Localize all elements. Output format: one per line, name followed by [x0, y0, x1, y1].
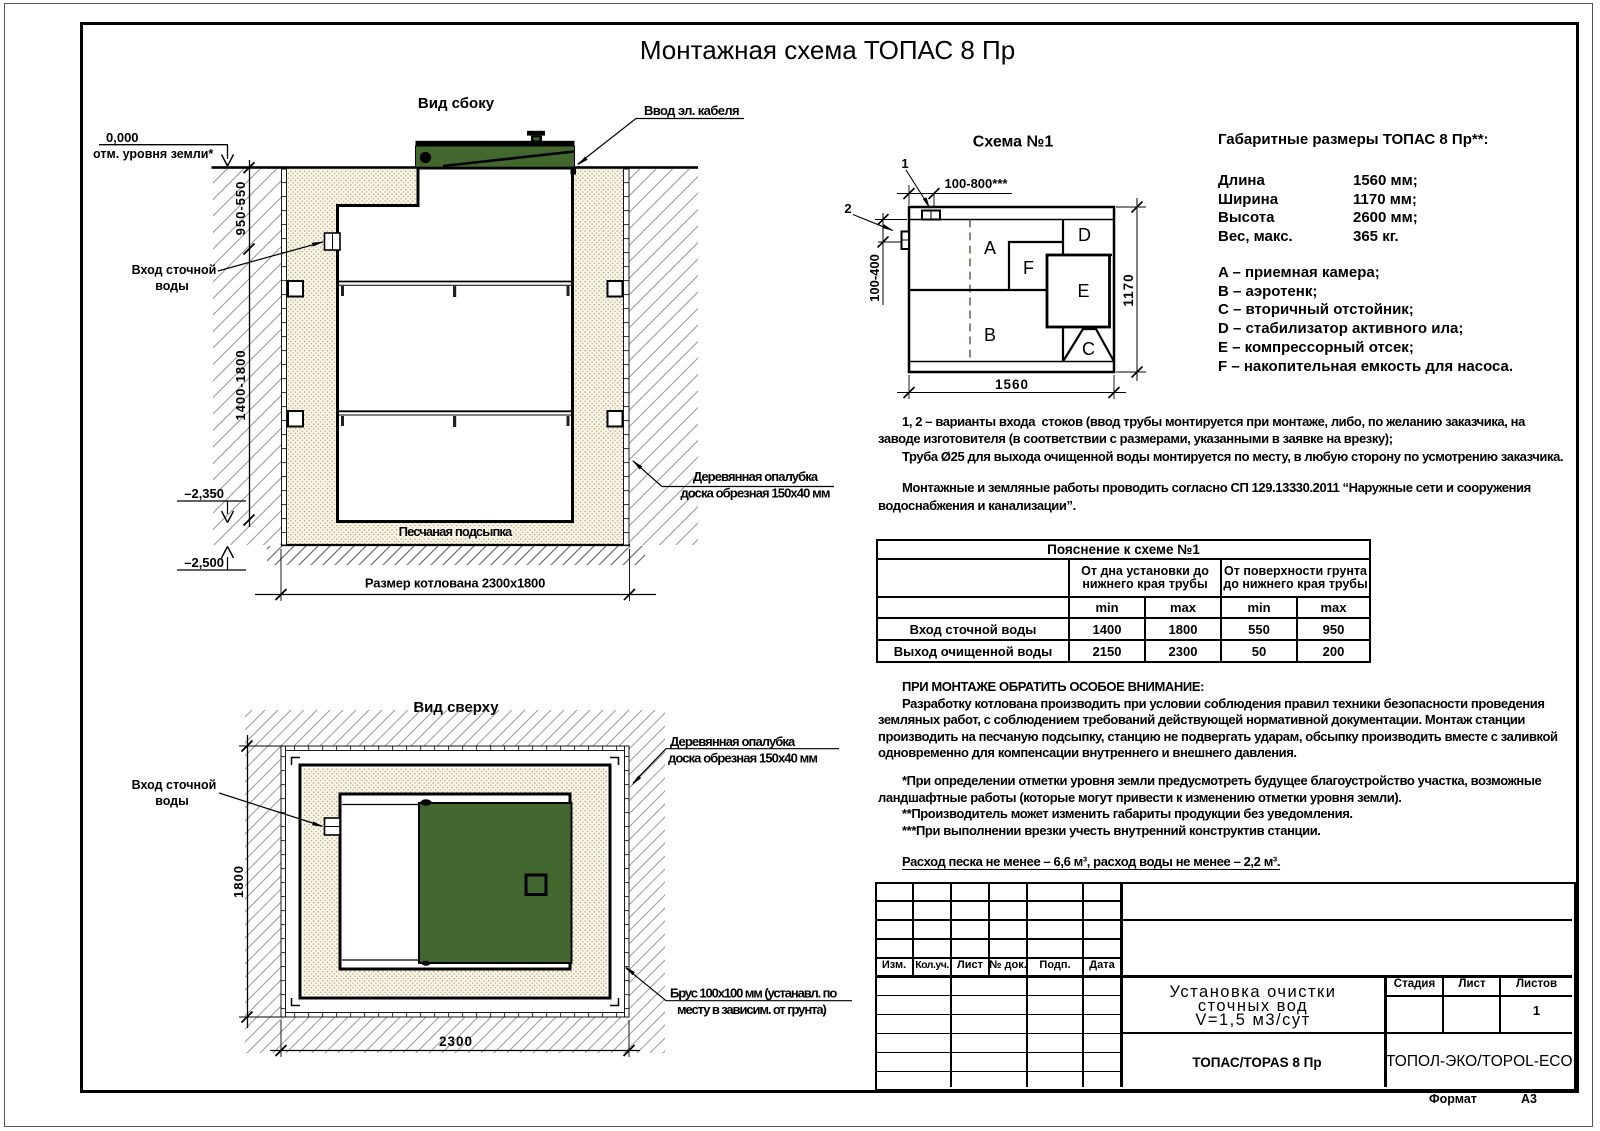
svg-text:Вход сточной: Вход сточной: [132, 778, 217, 792]
svg-text:Брус 100x100 мм (устанавл. по: Брус 100x100 мм (устанавл. по: [670, 986, 837, 1001]
svg-text:Ввод эл. кабеля: Ввод эл. кабеля: [644, 103, 739, 118]
svg-text:2: 2: [844, 201, 851, 216]
svg-text:Размер котлована 2300x1800: Размер котлована 2300x1800: [365, 576, 545, 591]
svg-text:Схема №1: Схема №1: [973, 134, 1054, 151]
svg-text:воды: воды: [155, 279, 189, 293]
svg-text:Песчаная подсыпка: Песчаная подсыпка: [399, 524, 513, 539]
svg-text:Деревянная опалубка: Деревянная опалубка: [693, 469, 819, 484]
svg-text:0,000: 0,000: [106, 130, 139, 145]
svg-text:отм. уровня земли*: отм. уровня земли*: [93, 147, 213, 161]
svg-text:Вид сбоку: Вид сбоку: [418, 95, 495, 112]
svg-text:950-550: 950-550: [233, 181, 248, 236]
svg-text:воды: воды: [155, 794, 189, 808]
svg-text:–2,350: –2,350: [184, 486, 224, 501]
svg-text:2300: 2300: [439, 1034, 473, 1049]
svg-text:1800: 1800: [231, 865, 246, 898]
svg-text:100-800***: 100-800***: [945, 176, 1009, 191]
svg-text:1: 1: [901, 156, 908, 171]
svg-text:Деревянная опалубка: Деревянная опалубка: [670, 734, 796, 749]
svg-text:1400-1800: 1400-1800: [233, 349, 248, 420]
svg-text:D: D: [1078, 225, 1091, 245]
svg-text:месту в зависим. от грунта): месту в зависим. от грунта): [677, 1002, 826, 1017]
svg-text:E: E: [1077, 281, 1089, 301]
svg-text:Вход сточной: Вход сточной: [132, 263, 217, 277]
svg-text:1170: 1170: [1121, 273, 1136, 306]
svg-text:F: F: [1023, 258, 1034, 278]
svg-text:доска обрезная 150x40 мм: доска обрезная 150x40 мм: [668, 751, 817, 766]
svg-text:C: C: [1082, 339, 1095, 359]
svg-text:доска обрезная 150x40 мм: доска обрезная 150x40 мм: [680, 486, 829, 501]
svg-text:A: A: [984, 238, 996, 258]
svg-text:–2,500: –2,500: [184, 555, 224, 570]
svg-text:B: B: [984, 325, 996, 345]
svg-text:1560: 1560: [995, 377, 1029, 392]
svg-text:100-400: 100-400: [867, 254, 882, 302]
